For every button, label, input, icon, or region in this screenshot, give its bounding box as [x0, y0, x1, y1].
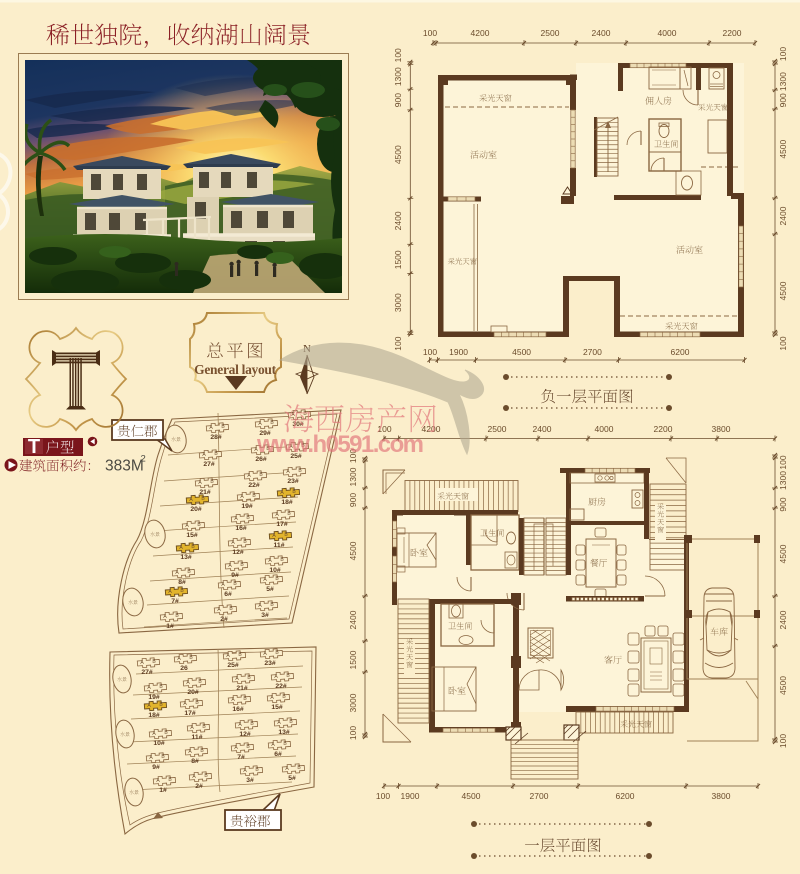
svg-text:4200: 4200 — [471, 28, 490, 38]
svg-text:900: 900 — [393, 93, 403, 107]
svg-text:4500: 4500 — [348, 541, 358, 560]
svg-text:3800: 3800 — [712, 791, 731, 801]
svg-text:2500: 2500 — [541, 28, 560, 38]
svg-text:13#: 13# — [278, 729, 290, 736]
svg-text:17#: 17# — [184, 710, 196, 717]
svg-text:15#: 15# — [271, 704, 283, 711]
svg-text:2400: 2400 — [348, 610, 358, 629]
svg-text:1500: 1500 — [348, 650, 358, 669]
svg-text:10#: 10# — [153, 740, 165, 747]
svg-text:2200: 2200 — [723, 28, 742, 38]
svg-text:100: 100 — [348, 726, 358, 740]
svg-text:12#: 12# — [239, 731, 251, 738]
svg-text:General layout: General layout — [194, 362, 276, 377]
svg-text:11#: 11# — [274, 542, 285, 549]
svg-text:7#: 7# — [237, 754, 245, 761]
svg-text:100: 100 — [423, 28, 437, 38]
svg-text:7#: 7# — [171, 598, 179, 605]
svg-text:6#: 6# — [224, 591, 232, 598]
svg-text:100: 100 — [778, 336, 788, 350]
svg-text:100: 100 — [423, 347, 437, 357]
svg-text:13#: 13# — [180, 554, 192, 561]
svg-text:2500: 2500 — [488, 424, 507, 434]
svg-text:4500: 4500 — [462, 791, 481, 801]
svg-text:2400: 2400 — [778, 206, 788, 225]
svg-text:1300: 1300 — [393, 67, 403, 86]
svg-text:8#: 8# — [178, 579, 186, 586]
svg-text:2200: 2200 — [654, 424, 673, 434]
svg-text:2400: 2400 — [533, 424, 552, 434]
svg-text:9#: 9# — [152, 764, 160, 771]
svg-text:900: 900 — [778, 93, 788, 107]
svg-text:23#: 23# — [264, 660, 276, 667]
svg-text:4200: 4200 — [422, 424, 441, 434]
svg-text:3000: 3000 — [393, 293, 403, 312]
svg-text:22#: 22# — [248, 482, 260, 489]
svg-text:8#: 8# — [191, 758, 199, 765]
svg-text:4000: 4000 — [595, 424, 614, 434]
svg-text:2#: 2# — [195, 783, 203, 790]
svg-text:1300: 1300 — [778, 72, 788, 91]
svg-text:11#: 11# — [192, 734, 203, 741]
svg-text:100: 100 — [393, 48, 403, 62]
svg-text:3#: 3# — [246, 777, 254, 784]
svg-text:100: 100 — [778, 47, 788, 61]
svg-text:20#: 20# — [190, 506, 202, 513]
svg-text:www.h0591.com: www.h0591.com — [256, 431, 424, 458]
svg-text:15#: 15# — [186, 532, 198, 539]
svg-text:100: 100 — [778, 734, 788, 748]
svg-text:25#: 25# — [227, 662, 239, 669]
svg-text:18#: 18# — [281, 499, 293, 506]
svg-text:900: 900 — [348, 493, 358, 507]
svg-text:6200: 6200 — [671, 347, 690, 357]
svg-text:2700: 2700 — [583, 347, 602, 357]
svg-text:3000: 3000 — [348, 693, 358, 712]
svg-text:5#: 5# — [266, 586, 274, 593]
svg-text:4000: 4000 — [658, 28, 677, 38]
svg-text:3#: 3# — [261, 612, 269, 619]
svg-text:2400: 2400 — [393, 211, 403, 230]
svg-text:12#: 12# — [232, 549, 244, 556]
svg-text:2: 2 — [141, 455, 146, 465]
svg-text:19#: 19# — [241, 503, 253, 510]
svg-text:16#: 16# — [235, 525, 247, 532]
svg-text:4500: 4500 — [393, 145, 403, 164]
svg-text:27#: 27# — [141, 669, 153, 676]
svg-text:1#: 1# — [159, 787, 167, 794]
svg-text:10#: 10# — [269, 567, 281, 574]
svg-text:3800: 3800 — [712, 424, 731, 434]
svg-text:100: 100 — [393, 336, 403, 350]
svg-text:4500: 4500 — [778, 281, 788, 300]
svg-text:4500: 4500 — [778, 676, 788, 695]
svg-text:5#: 5# — [288, 775, 296, 782]
svg-text:1300: 1300 — [778, 471, 788, 490]
svg-text:100: 100 — [376, 791, 390, 801]
svg-text:6200: 6200 — [616, 791, 635, 801]
svg-text:100: 100 — [778, 455, 788, 469]
svg-text:4500: 4500 — [778, 139, 788, 158]
svg-text:6#: 6# — [274, 751, 282, 758]
svg-text:383M: 383M — [105, 458, 144, 475]
svg-text:1#: 1# — [166, 623, 174, 630]
svg-text:2400: 2400 — [592, 28, 611, 38]
svg-text:2#: 2# — [220, 616, 228, 623]
svg-text:20#: 20# — [187, 689, 199, 696]
svg-text:26: 26 — [180, 665, 188, 672]
svg-text:21#: 21# — [236, 685, 248, 692]
svg-text:28#: 28# — [210, 434, 222, 441]
svg-text:1500: 1500 — [393, 250, 403, 269]
svg-text:22#: 22# — [275, 683, 287, 690]
svg-text:900: 900 — [778, 497, 788, 511]
svg-text:1300: 1300 — [348, 467, 358, 486]
svg-text:4500: 4500 — [512, 347, 531, 357]
svg-text:17#: 17# — [276, 521, 288, 528]
svg-text:2700: 2700 — [530, 791, 549, 801]
svg-text:1900: 1900 — [401, 791, 420, 801]
svg-text:4500: 4500 — [778, 544, 788, 563]
svg-text:16#: 16# — [232, 706, 244, 713]
svg-text:18#: 18# — [148, 712, 160, 719]
svg-text:1900: 1900 — [449, 347, 468, 357]
svg-text:19#: 19# — [148, 694, 160, 701]
svg-text:23#: 23# — [287, 478, 299, 485]
svg-text:2400: 2400 — [778, 610, 788, 629]
svg-text:9#: 9# — [231, 572, 239, 579]
